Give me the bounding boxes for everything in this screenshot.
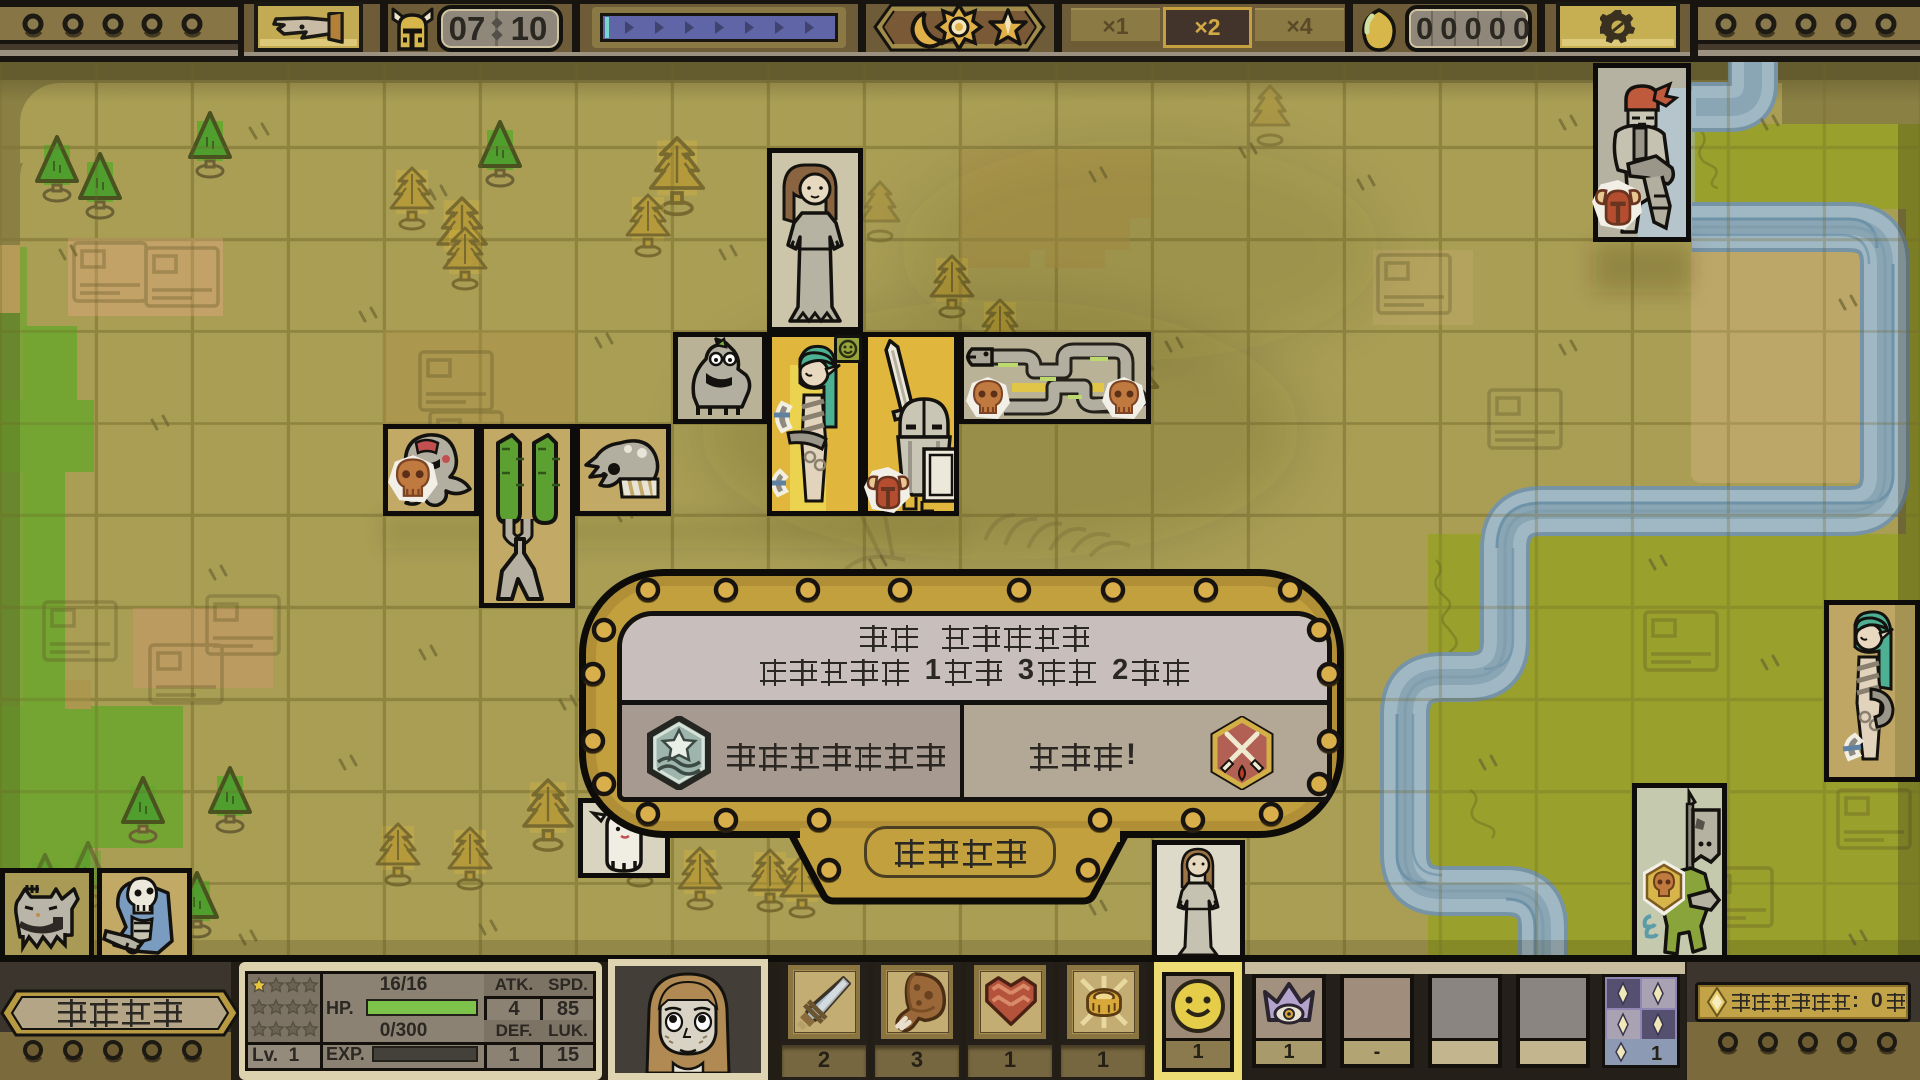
- svg-text:1: 1: [1651, 1043, 1662, 1065]
